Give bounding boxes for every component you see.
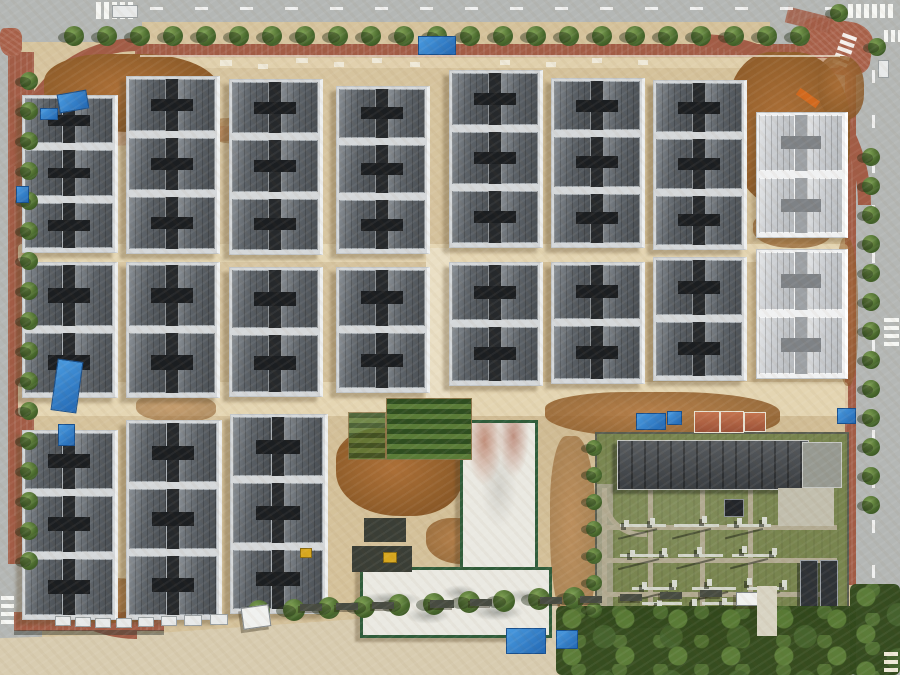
parked-vehicle xyxy=(55,616,71,626)
blue-tarp xyxy=(58,424,75,446)
material-stack xyxy=(300,604,322,611)
blue-tarp xyxy=(506,628,546,654)
parked-vehicle xyxy=(184,615,202,626)
parked-vehicle xyxy=(75,617,91,627)
shed-roof xyxy=(720,411,744,433)
blue-tarp xyxy=(16,186,29,203)
truck xyxy=(736,592,758,606)
white-marking xyxy=(140,55,840,57)
parked-vehicle xyxy=(878,60,889,78)
blue-tarp xyxy=(837,408,856,424)
white-marking xyxy=(334,62,344,67)
concrete-path xyxy=(757,586,777,636)
truck xyxy=(241,604,272,630)
props-layer xyxy=(0,0,900,675)
white-marking xyxy=(296,58,308,63)
parked-vehicle xyxy=(116,618,132,628)
white-marking xyxy=(884,668,898,672)
blue-tarp xyxy=(40,108,58,120)
parked-vehicle xyxy=(161,616,177,626)
blue-tarp xyxy=(57,90,90,114)
parked-vehicle xyxy=(95,618,111,628)
white-marking xyxy=(410,62,420,67)
blue-tarp xyxy=(556,630,578,649)
material-stack xyxy=(700,590,722,597)
material-stack xyxy=(336,603,358,610)
parked-vehicle xyxy=(138,617,154,627)
blue-tarp xyxy=(51,358,84,413)
blue-tarp xyxy=(418,36,456,55)
material-stack xyxy=(580,596,602,603)
white-marking xyxy=(638,60,648,65)
blue-tarp xyxy=(667,411,682,425)
garden-plot xyxy=(386,398,472,460)
white-marking xyxy=(884,660,898,664)
material-stack xyxy=(470,599,492,606)
crane-arm xyxy=(796,88,820,108)
white-marking xyxy=(258,64,268,69)
parked-vehicle xyxy=(112,5,138,18)
excavator xyxy=(300,548,312,558)
material-stack xyxy=(430,600,454,608)
blue-tarp xyxy=(636,413,666,430)
excavator xyxy=(383,552,397,563)
white-marking xyxy=(546,62,556,67)
material-stack xyxy=(660,592,682,599)
white-marking xyxy=(220,60,232,66)
white-marking xyxy=(592,58,602,63)
parked-vehicle xyxy=(210,614,228,625)
dark-shed xyxy=(364,518,406,542)
material-stack xyxy=(620,594,642,601)
shed-roof xyxy=(694,411,720,433)
white-marking xyxy=(372,58,382,63)
material-stack xyxy=(540,597,562,604)
white-marking xyxy=(884,652,898,656)
aerial-photo-construction-site xyxy=(0,0,900,675)
white-marking xyxy=(500,60,510,65)
material-stack xyxy=(372,602,394,609)
shed-roof xyxy=(744,412,766,432)
dark-shed xyxy=(352,546,412,572)
dark-shed xyxy=(14,630,164,635)
garden-plot xyxy=(348,412,386,460)
